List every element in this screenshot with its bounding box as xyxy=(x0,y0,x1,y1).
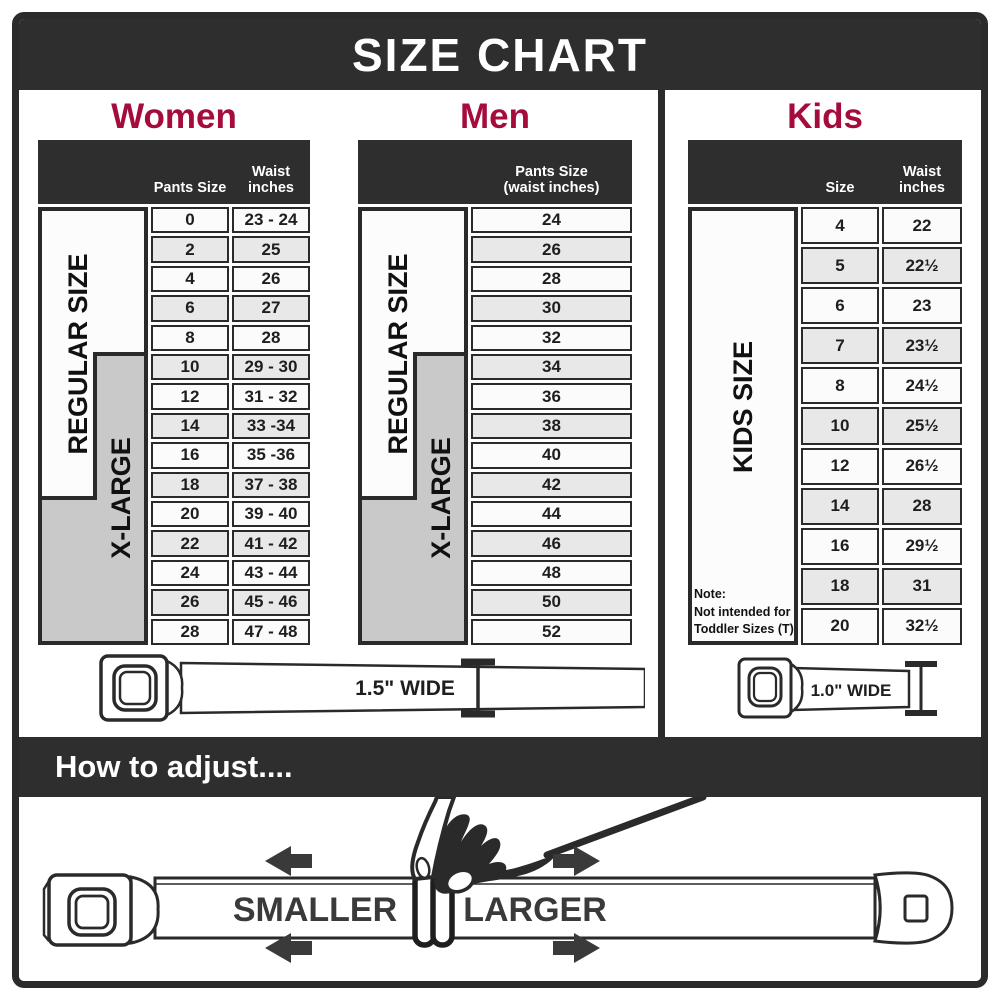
table-cell: 23 xyxy=(882,287,962,324)
table-cell: 26 xyxy=(151,589,229,615)
table-cell: 22 xyxy=(882,207,962,244)
table-cell: 14 xyxy=(151,413,229,439)
table-cell: 23 - 24 xyxy=(232,207,310,233)
table-cell: 7 xyxy=(801,327,879,364)
table-cell: 28 xyxy=(471,266,632,292)
table-cell: 45 - 46 xyxy=(232,589,310,615)
men-xlarge-label: X-LARGE xyxy=(426,437,456,559)
table-cell: 28 xyxy=(151,619,229,645)
women-table-header: Pants Size Waist inches xyxy=(38,140,310,204)
table-cell: 47 - 48 xyxy=(232,619,310,645)
women-size-range-sidebar: REGULAR SIZE X-LARGE xyxy=(38,207,148,645)
smaller-label: SMALLER xyxy=(233,891,397,929)
kids-size-label: KIDS SIZE xyxy=(728,341,758,473)
kids-col-size: Size xyxy=(801,180,879,197)
table-cell: 26 xyxy=(232,266,310,292)
women-col-pants-size: Pants Size xyxy=(151,180,229,197)
men-regular-size-label: REGULAR SIZE xyxy=(383,253,413,454)
table-cell: 24 xyxy=(471,207,632,233)
adjust-illustration: SMALLER LARGER xyxy=(19,797,981,981)
men-rows: 242628303234363840424446485052 xyxy=(471,207,632,645)
table-cell: 23½ xyxy=(882,327,962,364)
table-cell: 52 xyxy=(471,619,632,645)
table-cell: 46 xyxy=(471,530,632,556)
kids-size-graphic: KIDS SIZE xyxy=(688,207,798,645)
men-table-body: REGULAR SIZE X-LARGE 2426283032343638404… xyxy=(358,207,632,645)
how-to-adjust-bar: How to adjust.... xyxy=(19,737,981,797)
table-cell: 22½ xyxy=(882,247,962,284)
table-cell: 39 - 40 xyxy=(232,501,310,527)
panel-divider xyxy=(658,90,665,737)
table-cell: 20 xyxy=(801,608,879,645)
how-to-adjust-heading: How to adjust.... xyxy=(55,749,293,785)
table-cell: 18 xyxy=(801,568,879,605)
table-cell: 32½ xyxy=(882,608,962,645)
table-cell: 48 xyxy=(471,560,632,586)
table-cell: 25 xyxy=(232,236,310,262)
outer-frame: SIZE CHART Women Men Kids Pants Size Wai… xyxy=(12,12,988,988)
table-cell: 8 xyxy=(801,367,879,404)
table-cell: 20 xyxy=(151,501,229,527)
table-cell: 35 -36 xyxy=(232,442,310,468)
men-size-range-sidebar: REGULAR SIZE X-LARGE xyxy=(358,207,468,645)
women-table: Pants Size Waist inches REGULAR SIZE X-L… xyxy=(38,140,310,645)
table-cell: 10 xyxy=(151,354,229,380)
men-table: Pants Size (waist inches) REGULAR SIZE X… xyxy=(358,140,632,645)
table-cell: 40 xyxy=(471,442,632,468)
men-size-range-graphic: REGULAR SIZE X-LARGE xyxy=(358,207,468,645)
arrow-left-icon xyxy=(265,846,312,876)
table-cell: 18 xyxy=(151,472,229,498)
women-rows: 023 - 242254266278281029 - 301231 - 3214… xyxy=(151,207,310,645)
table-cell: 26½ xyxy=(882,448,962,485)
women-xlarge-label: X-LARGE xyxy=(106,437,136,559)
table-cell: 10 xyxy=(801,407,879,444)
kids-table: Size Waist inches KIDS SIZE Note: Not in… xyxy=(688,140,962,645)
table-cell: 12 xyxy=(801,448,879,485)
table-cell: 32 xyxy=(471,325,632,351)
table-cell: 37 - 38 xyxy=(232,472,310,498)
table-cell: 25½ xyxy=(882,407,962,444)
how-to-adjust-panel: SMALLER LARGER xyxy=(19,797,981,981)
table-cell: 50 xyxy=(471,589,632,615)
men-table-header: Pants Size (waist inches) xyxy=(358,140,632,204)
table-cell: 14 xyxy=(801,488,879,525)
adult-belt-width-label: 1.5" WIDE xyxy=(355,677,455,700)
men-heading: Men xyxy=(358,97,632,137)
kids-table-header: Size Waist inches xyxy=(688,140,962,204)
table-cell: 31 - 32 xyxy=(232,383,310,409)
table-cell: 6 xyxy=(801,287,879,324)
table-cell: 24 xyxy=(151,560,229,586)
title-banner: SIZE CHART xyxy=(19,19,981,90)
kids-size-sidebar: KIDS SIZE Note: Not intended for Toddler… xyxy=(688,207,798,645)
table-cell: 16 xyxy=(151,442,229,468)
kids-belt-width-label: 1.0" WIDE xyxy=(811,681,892,700)
table-cell: 4 xyxy=(801,207,879,244)
men-col-pants-size: Pants Size (waist inches) xyxy=(471,164,632,197)
kids-rows: 422522½623723½824½1025½1226½14281629½183… xyxy=(801,207,962,645)
table-cell: 29 - 30 xyxy=(232,354,310,380)
table-cell: 43 - 44 xyxy=(232,560,310,586)
table-cell: 16 xyxy=(801,528,879,565)
women-heading: Women xyxy=(38,97,310,137)
table-cell: 31 xyxy=(882,568,962,605)
table-cell: 0 xyxy=(151,207,229,233)
table-cell: 26 xyxy=(471,236,632,262)
table-cell: 22 xyxy=(151,530,229,556)
table-cell: 12 xyxy=(151,383,229,409)
table-cell: 27 xyxy=(232,295,310,321)
table-cell: 38 xyxy=(471,413,632,439)
women-size-range-graphic: REGULAR SIZE X-LARGE xyxy=(38,207,148,645)
table-cell: 41 - 42 xyxy=(232,530,310,556)
kids-note: Note: Not intended for Toddler Sizes (T) xyxy=(694,586,796,639)
table-cell: 5 xyxy=(801,247,879,284)
table-cell: 30 xyxy=(471,295,632,321)
table-cell: 33 -34 xyxy=(232,413,310,439)
table-cell: 36 xyxy=(471,383,632,409)
kids-belt-illustration: 1.0" WIDE xyxy=(735,655,962,722)
kids-col-waist: Waist inches xyxy=(882,164,962,197)
larger-label: LARGER xyxy=(463,891,607,929)
table-cell: 42 xyxy=(471,472,632,498)
women-regular-size-label: REGULAR SIZE xyxy=(63,253,93,454)
kids-table-body: KIDS SIZE Note: Not intended for Toddler… xyxy=(688,207,962,645)
loose-belt-end xyxy=(547,797,703,855)
table-cell: 2 xyxy=(151,236,229,262)
table-cell: 8 xyxy=(151,325,229,351)
women-table-body: REGULAR SIZE X-LARGE 023 - 2422542662782… xyxy=(38,207,310,645)
table-cell: 28 xyxy=(882,488,962,525)
table-cell: 44 xyxy=(471,501,632,527)
table-cell: 34 xyxy=(471,354,632,380)
table-cell: 24½ xyxy=(882,367,962,404)
table-cell: 28 xyxy=(232,325,310,351)
size-chart-graphic: SIZE CHART Women Men Kids Pants Size Wai… xyxy=(0,0,1000,1000)
table-cell: 4 xyxy=(151,266,229,292)
kids-heading: Kids xyxy=(688,97,962,137)
page-title: SIZE CHART xyxy=(352,28,648,82)
adult-belt-illustration: 1.5" WIDE xyxy=(95,650,645,725)
table-cell: 6 xyxy=(151,295,229,321)
women-col-waist: Waist inches xyxy=(232,164,310,197)
table-cell: 29½ xyxy=(882,528,962,565)
